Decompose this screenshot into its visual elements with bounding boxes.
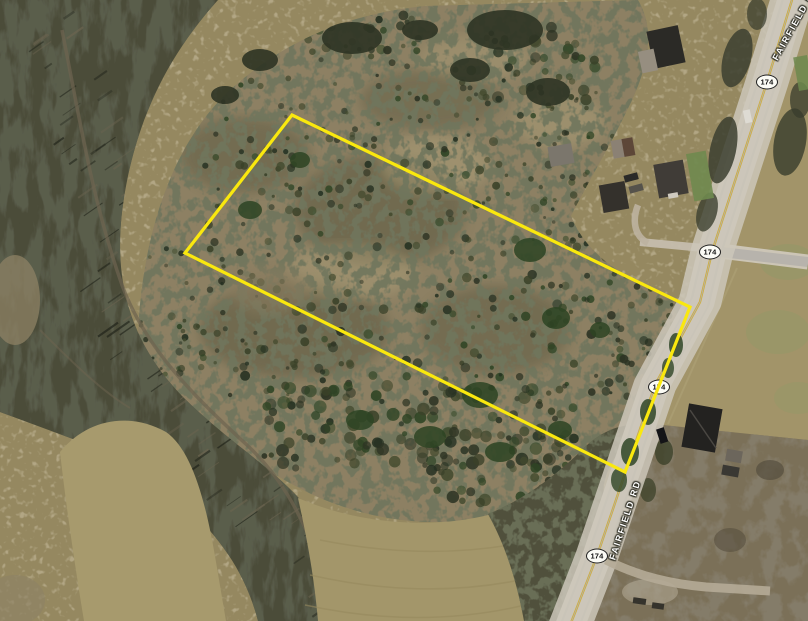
house-roof xyxy=(547,143,574,167)
house-roof xyxy=(599,181,629,213)
satellite-terrain xyxy=(0,0,808,621)
house-roof xyxy=(653,160,688,199)
aerial-map-view[interactable]: FAIRFIELD RD FAIRFIELD RD 174 174 174 17… xyxy=(0,0,808,621)
